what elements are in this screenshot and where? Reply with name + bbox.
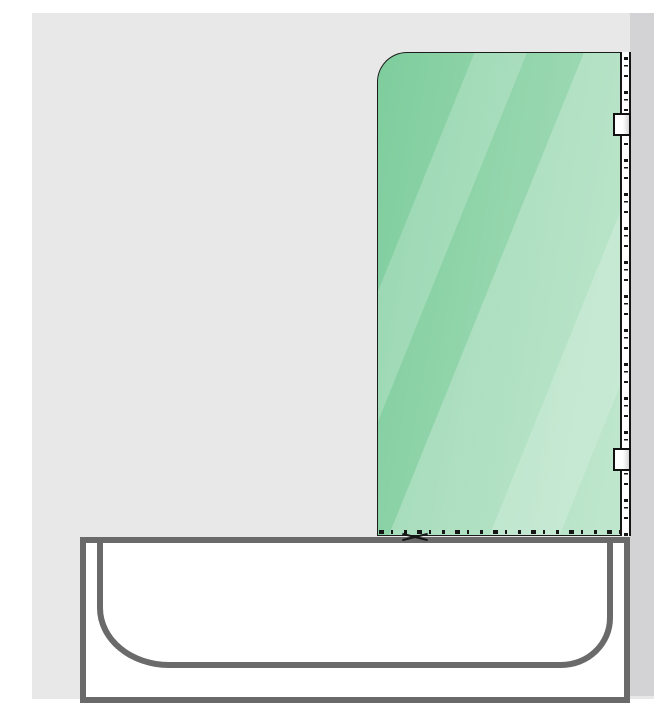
- top-hinge: [613, 113, 631, 136]
- bottom-hinge: [613, 448, 631, 471]
- glass-panel: [377, 52, 621, 536]
- bathtub-outline: [80, 537, 630, 703]
- fixing-cross-mark: [402, 531, 428, 543]
- side-wall-return: [630, 13, 654, 696]
- bath-screen-diagram: [0, 0, 672, 724]
- bathtub-basin: [97, 543, 613, 668]
